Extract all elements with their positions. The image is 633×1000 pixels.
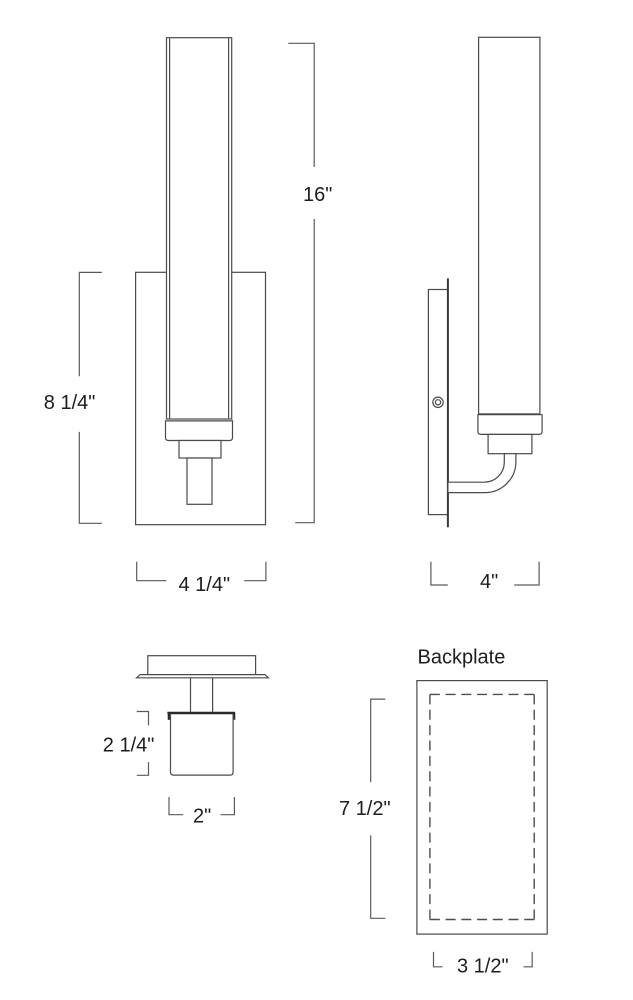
svg-text:2 1/4": 2 1/4" [103, 735, 155, 757]
svg-text:4": 4" [480, 571, 498, 593]
svg-text:4 1/4": 4 1/4" [179, 574, 231, 596]
svg-text:3 1/2": 3 1/2" [457, 955, 509, 977]
svg-text:8 1/4": 8 1/4" [44, 392, 96, 414]
svg-text:2": 2" [193, 805, 211, 827]
svg-text:7 1/2": 7 1/2" [339, 798, 391, 820]
svg-text:16": 16" [303, 184, 332, 206]
svg-text:Backplate: Backplate [418, 647, 506, 669]
